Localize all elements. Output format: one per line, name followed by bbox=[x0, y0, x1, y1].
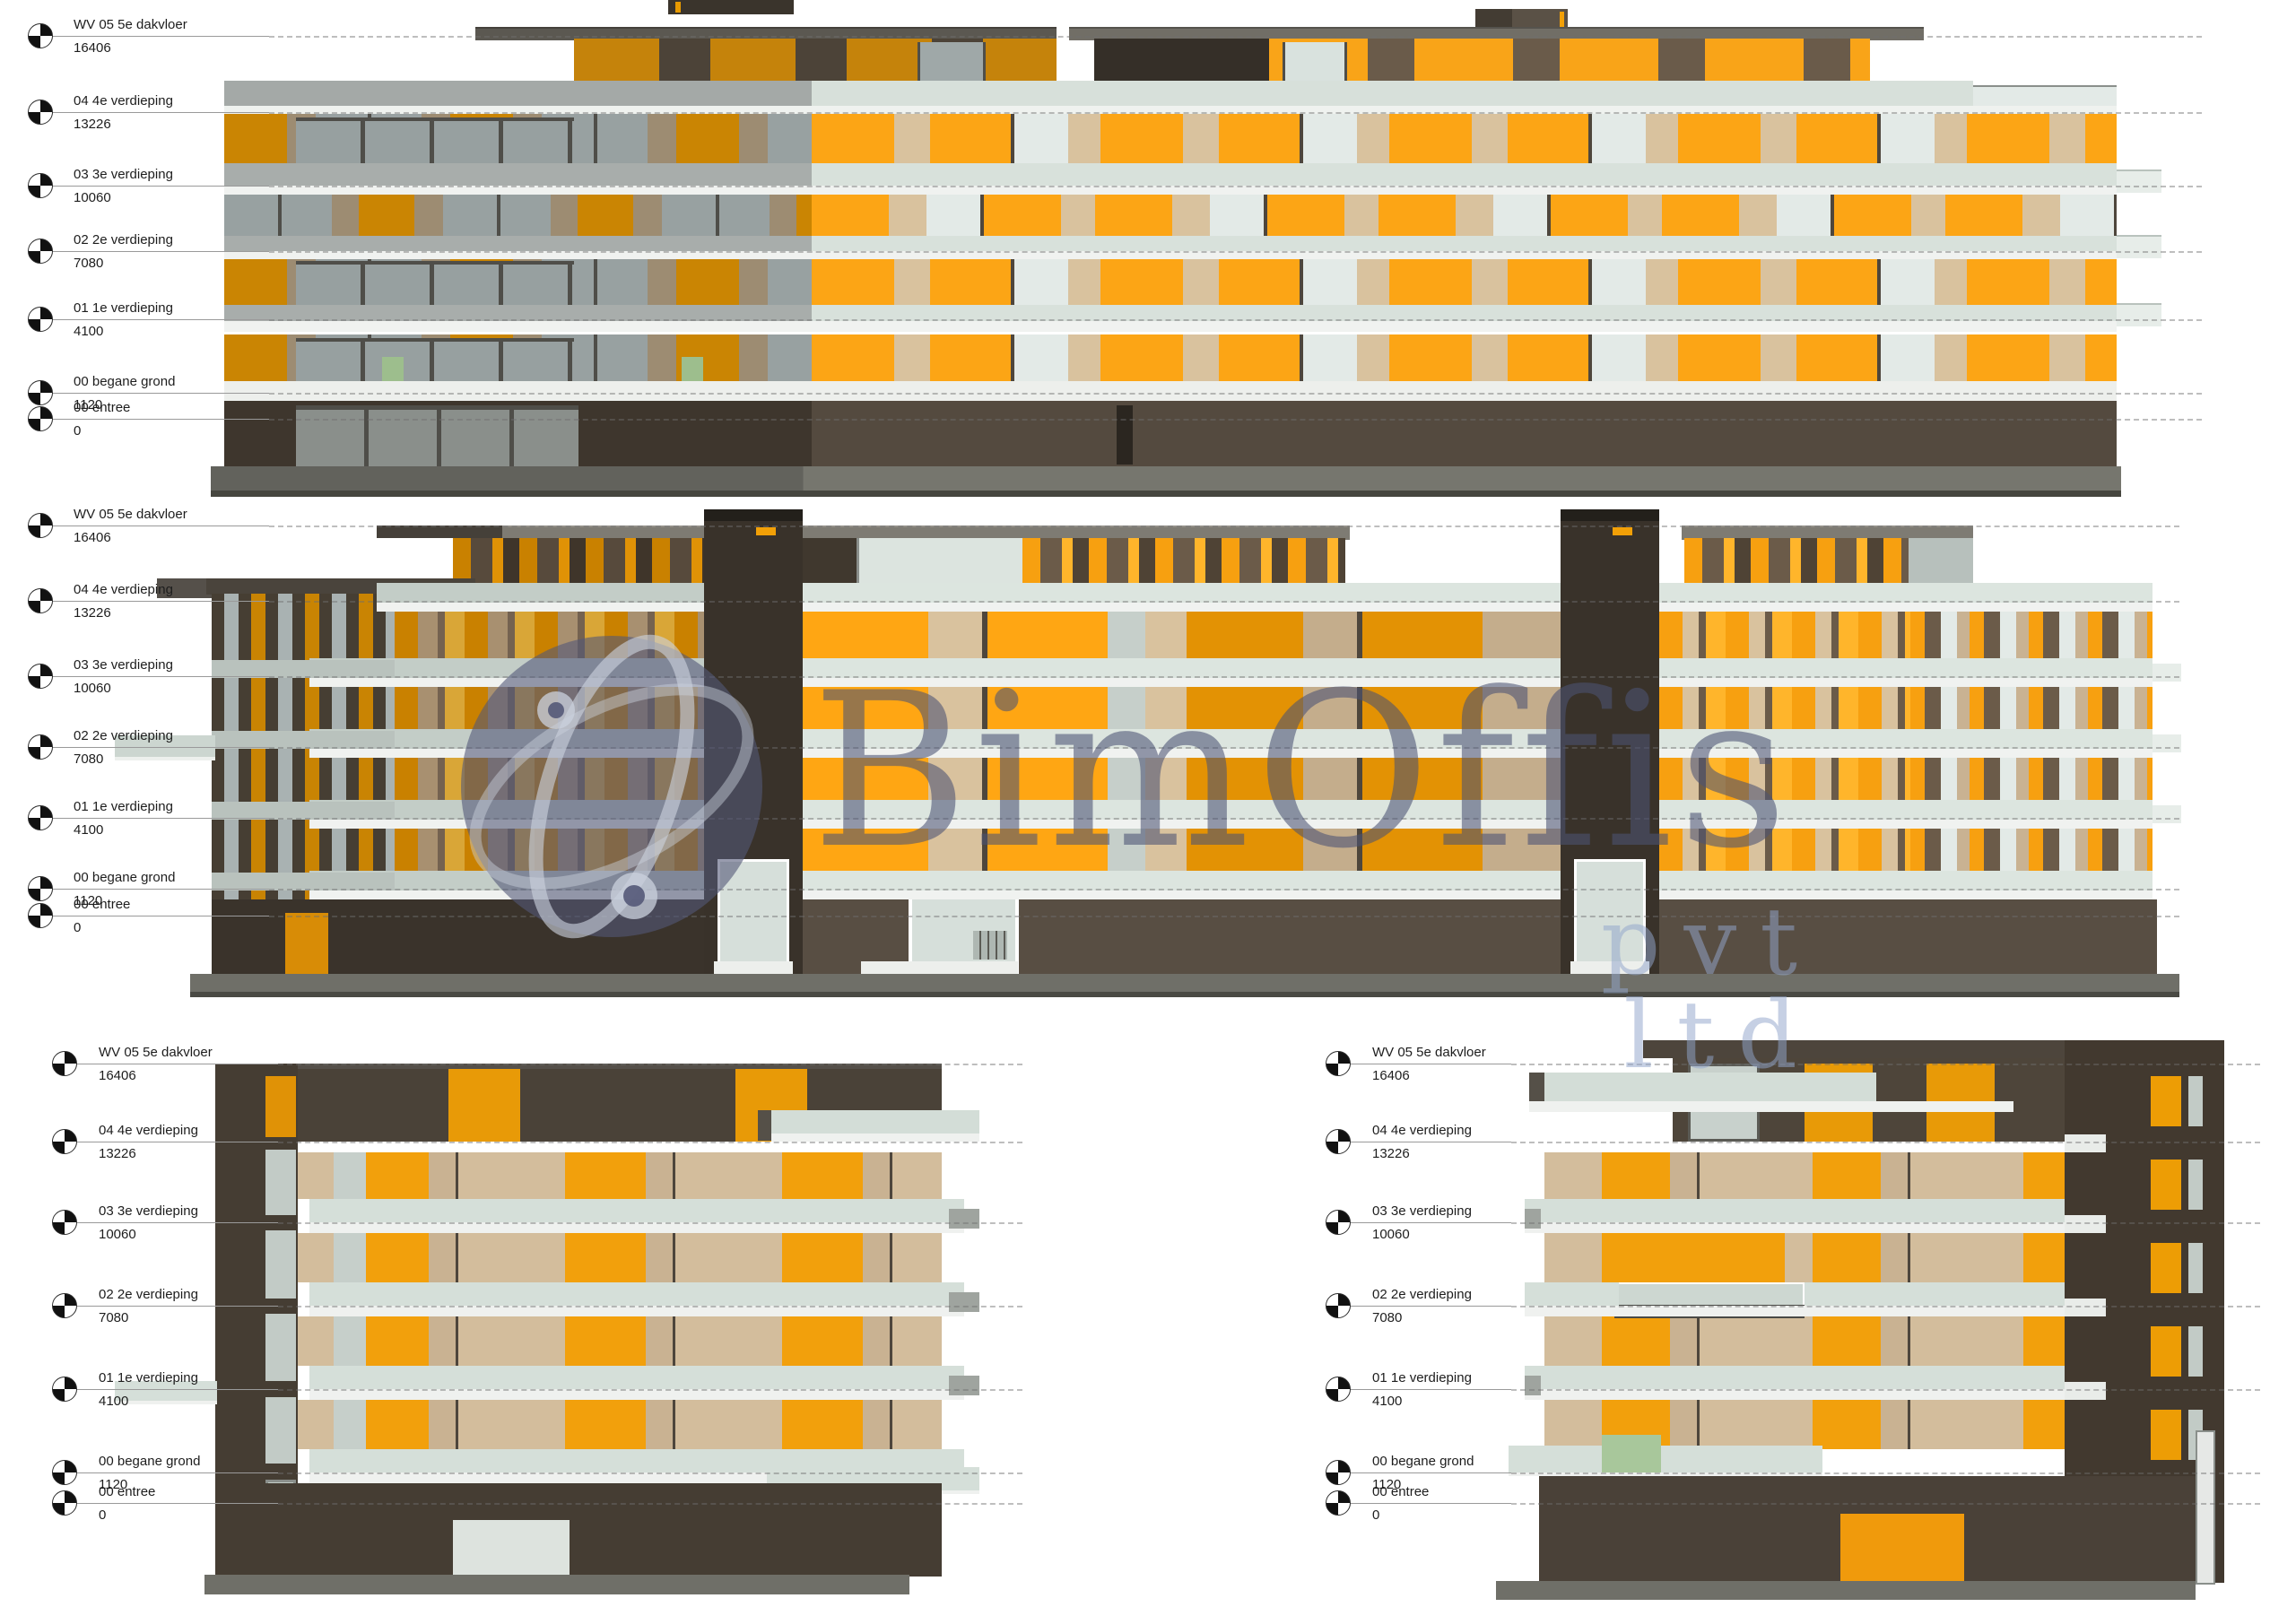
level-elevation: 16406 bbox=[1372, 1069, 1410, 1082]
level-elevation: 13226 bbox=[74, 117, 111, 131]
level-name: 03 3e verdieping bbox=[99, 1204, 198, 1218]
level-name: 01 1e verdieping bbox=[74, 800, 173, 813]
balcony-slab bbox=[1619, 1284, 1803, 1306]
level-leader-line bbox=[1338, 1222, 1511, 1223]
side-window bbox=[265, 1397, 296, 1464]
floor-facade bbox=[298, 1233, 942, 1282]
level-name: 04 4e verdieping bbox=[1372, 1124, 1472, 1137]
level-name: 03 3e verdieping bbox=[74, 658, 173, 672]
wing-facade bbox=[1910, 612, 2152, 658]
slab-band bbox=[803, 583, 2152, 603]
level-leader-line bbox=[40, 393, 269, 394]
level-datum-icon bbox=[28, 307, 53, 332]
floor-facade bbox=[1544, 1152, 2065, 1199]
balcony-slab-end bbox=[1525, 1376, 1541, 1395]
level-elevation: 4100 bbox=[99, 1394, 128, 1408]
grid-window bbox=[973, 931, 1007, 960]
level-name: 02 2e verdieping bbox=[74, 729, 173, 743]
level-elevation: 13226 bbox=[74, 606, 111, 620]
slab-band bbox=[309, 1282, 964, 1306]
level-elevation: 10060 bbox=[74, 191, 111, 204]
slab-band bbox=[309, 1199, 964, 1222]
wing-slab-band bbox=[212, 873, 395, 890]
floor-facade bbox=[812, 195, 2117, 236]
stair-tower-cap bbox=[1561, 509, 1659, 521]
level-leader-line bbox=[65, 1503, 278, 1504]
balcony-slab-end bbox=[2152, 664, 2181, 682]
level-line bbox=[269, 526, 2179, 527]
level-elevation: 16406 bbox=[74, 531, 111, 544]
slab-band bbox=[812, 236, 2117, 251]
floor-facade bbox=[812, 334, 2117, 381]
tower-light bbox=[756, 527, 776, 535]
level-datum-icon bbox=[1326, 1210, 1351, 1235]
level-elevation: 0 bbox=[99, 1508, 106, 1522]
penthouse-glass-door bbox=[918, 42, 986, 81]
slab-band bbox=[1805, 1282, 2103, 1306]
level-line bbox=[278, 1389, 1022, 1391]
slab-band bbox=[1525, 1366, 2103, 1389]
level-leader-line bbox=[1338, 1503, 1511, 1504]
level-leader-line bbox=[40, 601, 269, 602]
terrace-slab bbox=[1509, 1446, 1822, 1476]
level-line bbox=[278, 1222, 1022, 1224]
slab-edge bbox=[224, 381, 2117, 401]
ground-base bbox=[190, 974, 2179, 992]
level-leader-line bbox=[40, 112, 269, 113]
wing-slab-band bbox=[212, 802, 395, 820]
level-line bbox=[278, 1306, 1022, 1307]
level-line bbox=[269, 36, 2202, 38]
level-name: 01 1e verdieping bbox=[1372, 1371, 1472, 1385]
slab-edge bbox=[1529, 1101, 2013, 1112]
slab-edge bbox=[224, 321, 2117, 332]
level-leader-line bbox=[40, 186, 269, 187]
level-name: 00 entree bbox=[1372, 1485, 1429, 1498]
level-elevation: 0 bbox=[1372, 1508, 1379, 1522]
balcony-slab-end bbox=[949, 1209, 979, 1229]
side-window bbox=[265, 1314, 296, 1381]
level-line bbox=[1511, 1222, 2260, 1224]
level-datum-icon bbox=[1326, 1293, 1351, 1318]
level-leader-line bbox=[40, 676, 269, 677]
slab-band bbox=[812, 163, 2117, 186]
level-elevation: 0 bbox=[74, 921, 81, 934]
watermark-brand: BimOffis bbox=[812, 665, 1793, 879]
entrance-door bbox=[1840, 1514, 1964, 1583]
level-name: 04 4e verdieping bbox=[99, 1124, 198, 1137]
wing-facade bbox=[1910, 758, 2152, 800]
level-line bbox=[1511, 1472, 2260, 1474]
tower-base-glass bbox=[2196, 1430, 2215, 1585]
level-line bbox=[1511, 1389, 2260, 1391]
level-leader-line bbox=[40, 916, 269, 916]
level-leader-line bbox=[65, 1222, 278, 1223]
level-name: 00 begane grond bbox=[74, 375, 175, 388]
plinth bbox=[812, 401, 2117, 466]
level-datum-icon bbox=[52, 1460, 77, 1485]
level-name: WV 05 5e dakvloer bbox=[74, 18, 187, 31]
balcony-slab-end bbox=[1525, 1209, 1541, 1229]
level-line bbox=[1511, 1503, 2260, 1505]
balcony-slab-end bbox=[2117, 235, 2161, 258]
level-elevation: 10060 bbox=[1372, 1228, 1410, 1241]
window-strip bbox=[296, 117, 574, 167]
plinth-panel bbox=[453, 1520, 570, 1577]
ground-shadow bbox=[190, 992, 2179, 997]
level-leader-line bbox=[65, 1472, 278, 1473]
level-name: 04 4e verdieping bbox=[74, 94, 173, 108]
stair-tower-cap bbox=[704, 509, 803, 521]
level-leader-line bbox=[40, 36, 269, 37]
level-line bbox=[278, 1503, 1022, 1505]
side-window bbox=[265, 1150, 296, 1215]
level-line bbox=[1511, 1306, 2260, 1307]
level-name: 04 4e verdieping bbox=[74, 583, 173, 596]
ground-door bbox=[1117, 405, 1133, 465]
level-name: 02 2e verdieping bbox=[1372, 1288, 1472, 1301]
rooftop-box bbox=[668, 0, 794, 14]
penthouse-facade bbox=[1269, 39, 1870, 81]
tower-light bbox=[1613, 527, 1632, 535]
level-datum-icon bbox=[1326, 1051, 1351, 1076]
slab-band bbox=[309, 1366, 964, 1389]
level-datum-icon bbox=[1326, 1129, 1351, 1154]
level-datum-icon bbox=[52, 1129, 77, 1154]
entrance-door bbox=[285, 913, 328, 974]
window-strip bbox=[334, 1316, 366, 1366]
level-datum-icon bbox=[28, 173, 53, 198]
level-leader-line bbox=[40, 526, 269, 526]
level-elevation: 13226 bbox=[99, 1147, 136, 1160]
roof-slab bbox=[377, 526, 502, 538]
level-elevation: 10060 bbox=[74, 682, 111, 695]
watermark-suffix: pvt ltd bbox=[1444, 895, 1821, 1081]
level-leader-line bbox=[40, 319, 269, 320]
level-elevation: 0 bbox=[74, 424, 81, 438]
balcony-slab-end bbox=[2065, 1299, 2106, 1316]
level-elevation: 4100 bbox=[74, 823, 103, 837]
level-datum-icon bbox=[52, 1377, 77, 1402]
level-datum-icon bbox=[28, 513, 53, 538]
floor-facade bbox=[298, 1400, 942, 1449]
level-leader-line bbox=[65, 1389, 278, 1390]
ground-base bbox=[211, 466, 2121, 491]
level-name: 01 1e verdieping bbox=[74, 301, 173, 315]
terrace-slab bbox=[771, 1110, 979, 1135]
green-panel bbox=[682, 357, 703, 381]
level-datum-icon bbox=[52, 1293, 77, 1318]
slab-band bbox=[224, 236, 812, 251]
level-elevation: 16406 bbox=[74, 41, 111, 55]
level-datum-icon bbox=[52, 1051, 77, 1076]
level-line bbox=[269, 112, 2202, 114]
balcony-slab-end bbox=[949, 1376, 979, 1395]
slab-edge bbox=[377, 603, 2152, 612]
level-line bbox=[269, 251, 2202, 253]
level-datum-icon bbox=[28, 664, 53, 689]
penthouse-panel bbox=[448, 1069, 520, 1142]
level-datum-icon bbox=[28, 876, 53, 901]
level-name: 00 begane grond bbox=[1372, 1455, 1474, 1468]
rooftop-vent bbox=[1560, 12, 1564, 28]
window-strip bbox=[334, 1233, 366, 1282]
level-datum-icon bbox=[28, 588, 53, 613]
floor-facade bbox=[1544, 1316, 2065, 1366]
level-datum-icon bbox=[28, 406, 53, 431]
balcony-slab-end bbox=[949, 1292, 979, 1312]
window-strip bbox=[334, 1400, 366, 1449]
floor-facade bbox=[224, 195, 812, 236]
wing-facade bbox=[1910, 829, 2152, 871]
level-datum-icon bbox=[52, 1210, 77, 1235]
level-line bbox=[278, 1064, 1022, 1065]
level-leader-line bbox=[1338, 1389, 1511, 1390]
globe-logo-icon bbox=[450, 616, 773, 957]
level-elevation: 7080 bbox=[1372, 1311, 1402, 1325]
level-name: 00 begane grond bbox=[99, 1455, 200, 1468]
tower-window-strip bbox=[2151, 1076, 2181, 1475]
floor-facade bbox=[298, 1316, 942, 1366]
level-name: 00 entree bbox=[74, 401, 130, 414]
level-leader-line bbox=[40, 889, 269, 890]
level-leader-line bbox=[1338, 1472, 1511, 1473]
terrace-slab-cap bbox=[758, 1110, 771, 1141]
level-datum-icon bbox=[1326, 1460, 1351, 1485]
level-datum-icon bbox=[28, 805, 53, 830]
level-leader-line bbox=[65, 1064, 278, 1064]
window-strip bbox=[296, 261, 574, 308]
ground-base bbox=[1496, 1581, 2196, 1600]
balcony-slab-end bbox=[2117, 169, 2161, 193]
level-elevation: 7080 bbox=[74, 256, 103, 270]
level-line bbox=[278, 1142, 1022, 1143]
level-name: WV 05 5e dakvloer bbox=[99, 1046, 213, 1059]
level-datum-icon bbox=[28, 100, 53, 125]
level-leader-line bbox=[65, 1142, 278, 1142]
level-datum-icon bbox=[28, 734, 53, 760]
penthouse-glass-door bbox=[1283, 42, 1347, 81]
level-line bbox=[269, 419, 2202, 421]
balcony-slab-end bbox=[2117, 303, 2161, 326]
green-panel bbox=[1602, 1435, 1661, 1472]
level-elevation: 13226 bbox=[1372, 1147, 1410, 1160]
level-elevation: 4100 bbox=[74, 325, 103, 338]
wing-slab-band bbox=[212, 660, 395, 678]
balcony-slab-end bbox=[2065, 1215, 2106, 1233]
level-elevation: 10060 bbox=[99, 1228, 136, 1241]
level-elevation: 4100 bbox=[1372, 1394, 1402, 1408]
window-strip bbox=[296, 338, 574, 385]
level-datum-icon bbox=[1326, 1377, 1351, 1402]
level-line bbox=[269, 319, 2202, 321]
level-line bbox=[1511, 1142, 2260, 1143]
slab-band bbox=[224, 163, 812, 186]
level-line bbox=[278, 1472, 1022, 1474]
floor-facade bbox=[1544, 1233, 2065, 1282]
floor-facade bbox=[812, 257, 2117, 305]
floor-facade bbox=[812, 114, 2117, 163]
penthouse-core bbox=[1094, 39, 1269, 81]
level-name: WV 05 5e dakvloer bbox=[74, 508, 187, 521]
balcony-slab-end bbox=[2065, 1382, 2106, 1400]
level-datum-icon bbox=[1326, 1490, 1351, 1516]
rooftop-vent bbox=[675, 2, 681, 13]
floor-facade bbox=[298, 1152, 942, 1199]
side-window bbox=[265, 1076, 296, 1137]
level-leader-line bbox=[40, 251, 269, 252]
level-leader-line bbox=[40, 419, 269, 420]
level-line bbox=[269, 186, 2202, 187]
side-window bbox=[265, 1230, 296, 1299]
big-orange-panel bbox=[1664, 1233, 1785, 1282]
level-leader-line bbox=[1338, 1306, 1511, 1307]
level-leader-line bbox=[40, 747, 269, 748]
wing-facade bbox=[1910, 687, 2152, 729]
ground-shadow bbox=[211, 491, 2121, 497]
wing-slab-band bbox=[212, 731, 395, 749]
level-name: 02 2e verdieping bbox=[74, 233, 173, 247]
level-datum-icon bbox=[28, 239, 53, 264]
balcony-slab-end bbox=[2065, 1134, 2106, 1152]
level-elevation: 7080 bbox=[99, 1311, 128, 1325]
level-leader-line bbox=[40, 818, 269, 819]
level-datum-icon bbox=[52, 1490, 77, 1516]
level-name: 00 entree bbox=[74, 898, 130, 911]
level-datum-icon bbox=[28, 380, 53, 405]
level-name: 02 2e verdieping bbox=[99, 1288, 198, 1301]
ground-base bbox=[204, 1575, 909, 1594]
elevation-sheet: WV 05 5e dakvloer1640604 4e verdieping13… bbox=[0, 0, 2296, 1607]
window-strip bbox=[334, 1152, 366, 1199]
slab-edge bbox=[771, 1134, 979, 1142]
level-elevation: 7080 bbox=[74, 752, 103, 766]
level-line bbox=[269, 601, 2179, 603]
level-name: 03 3e verdieping bbox=[74, 168, 173, 181]
level-elevation: 16406 bbox=[99, 1069, 136, 1082]
balcony-slab-end bbox=[2152, 805, 2181, 823]
tower-window-strip bbox=[2188, 1076, 2203, 1475]
level-name: 01 1e verdieping bbox=[99, 1371, 198, 1385]
level-datum-icon bbox=[28, 903, 53, 928]
green-panel bbox=[382, 357, 404, 381]
level-name: 00 begane grond bbox=[74, 871, 175, 884]
plinth bbox=[215, 1483, 942, 1577]
level-leader-line bbox=[65, 1306, 278, 1307]
level-name: 03 3e verdieping bbox=[1372, 1204, 1472, 1218]
balcony-slab-end bbox=[2152, 734, 2181, 752]
ground-glass-doors bbox=[296, 405, 578, 469]
slab-band bbox=[1525, 1199, 2103, 1222]
level-leader-line bbox=[1338, 1142, 1511, 1142]
slab-band bbox=[1525, 1282, 1619, 1306]
level-name: 00 entree bbox=[99, 1485, 155, 1498]
level-line bbox=[269, 393, 2202, 395]
level-datum-icon bbox=[28, 23, 53, 48]
